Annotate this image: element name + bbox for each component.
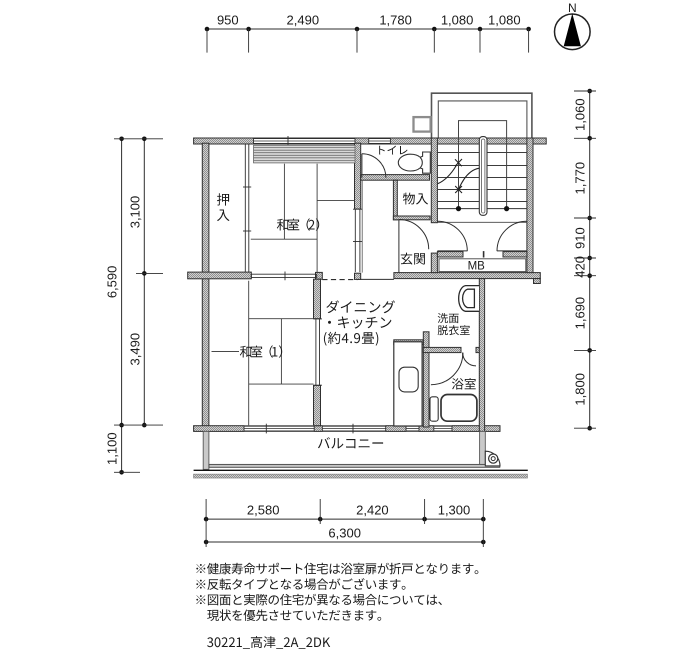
svg-text:MB: MB [468, 261, 486, 273]
svg-text:1,080: 1,080 [441, 13, 474, 28]
svg-text:420: 420 [572, 256, 587, 278]
svg-text:N: N [568, 1, 577, 15]
svg-text:2,580: 2,580 [247, 503, 280, 518]
svg-text:3,490: 3,490 [127, 333, 142, 366]
svg-text:1,770: 1,770 [572, 162, 587, 195]
svg-text:950: 950 [217, 13, 239, 28]
svg-text:1,060: 1,060 [572, 98, 587, 131]
svg-text:1,780: 1,780 [379, 13, 412, 28]
svg-text:1,080: 1,080 [488, 13, 521, 28]
svg-text:6,590: 6,590 [105, 266, 120, 299]
svg-text:1,800: 1,800 [572, 373, 587, 406]
svg-text:2,490: 2,490 [287, 13, 320, 28]
svg-text:910: 910 [572, 227, 587, 249]
svg-text:6,300: 6,300 [328, 526, 361, 541]
svg-text:1,300: 1,300 [438, 503, 471, 518]
svg-text:2,420: 2,420 [356, 503, 389, 518]
svg-text:1,100: 1,100 [105, 432, 120, 465]
svg-text:3,100: 3,100 [127, 196, 142, 229]
svg-text:1,690: 1,690 [572, 297, 587, 330]
